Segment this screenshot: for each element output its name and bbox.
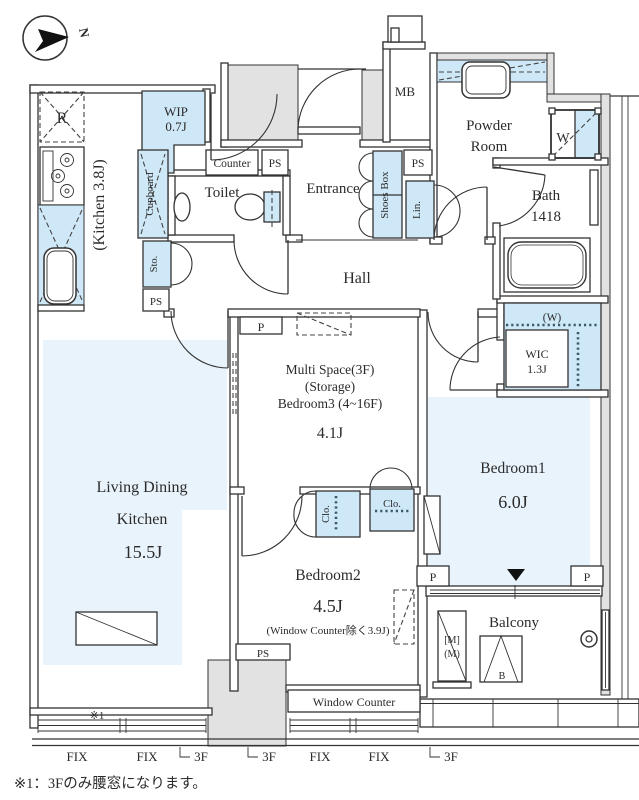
powder-room-label-1: Powder: [466, 118, 512, 134]
wall-segment: [497, 296, 608, 303]
bath-size: 1418: [531, 209, 561, 225]
cupboard-label: Cupboard: [144, 172, 156, 216]
wall-segment: [283, 176, 290, 235]
hall-label: Hall: [343, 270, 371, 287]
bedroom2-size: 4.5J: [313, 596, 343, 616]
footnote: ※1：3Fのみ腰窓になります。: [14, 774, 207, 792]
meter-label-1: [M]: [444, 635, 460, 646]
mb-label: MB: [395, 84, 416, 99]
powder-room-door: [434, 187, 487, 240]
multi-space-size: 4.1J: [317, 425, 343, 442]
ldk-table: [76, 612, 157, 645]
linen-label: Lin.: [411, 201, 423, 219]
toilet-label: Toilet: [205, 185, 241, 201]
wic-door: [450, 337, 500, 390]
multi-space-label-1: Multi Space(3F): [286, 362, 375, 377]
mb-pipe: [391, 28, 399, 42]
wall-opening-dashed: [231, 353, 237, 415]
counter-label: Counter: [213, 158, 250, 170]
vanity-counter: [437, 60, 547, 98]
drain: [581, 631, 597, 647]
bedroom2-door: [242, 496, 302, 556]
toilet-door: [234, 240, 288, 294]
pillar-label: P: [584, 570, 591, 584]
closet-label: Clo.: [321, 505, 332, 523]
ldk-size: 15.5J: [124, 542, 163, 562]
wall-segment: [433, 53, 554, 60]
window-counter-label: Window Counter: [313, 695, 396, 709]
entrance-label: Entrance: [306, 181, 360, 197]
window-type-label: 3F: [194, 749, 208, 764]
boiler-label: B: [499, 671, 506, 682]
wall-shelf: [424, 496, 440, 554]
wic-w-mark: (W): [543, 312, 562, 324]
wall-block: [362, 70, 383, 141]
ldk-label-2: Kitchen: [117, 511, 168, 528]
floor-plan-drawing: N (Kitchen 3.8J) WIP 0.7J R Counter PS C…: [0, 0, 639, 800]
bedroom1-door: [428, 312, 478, 362]
bedroom2-south-window: [290, 718, 418, 733]
bath-label: Bath: [532, 188, 561, 204]
compass-north-label: N: [76, 27, 93, 40]
ldk-south-window: [38, 718, 206, 733]
bath-counter: [590, 170, 598, 225]
window-type-label: 3F: [444, 749, 458, 764]
pillar-label: P: [258, 320, 265, 334]
balcony-railing: [420, 699, 639, 727]
wip-size: 0.7J: [165, 119, 186, 134]
ps-label: PS: [269, 158, 282, 170]
bedroom2-note: (Window Counter除く3.9J): [267, 623, 390, 637]
wic-label: WIC: [525, 347, 548, 361]
kitchen-label: (Kitchen 3.8J): [91, 159, 108, 251]
wall-segment: [360, 140, 434, 147]
balcony-side-window: [602, 610, 609, 690]
bathtub: [504, 238, 590, 292]
wall-segment: [221, 140, 302, 147]
ps-label: PS: [150, 296, 162, 308]
window-type-label: 3F: [262, 749, 276, 764]
toilet-sink: [174, 193, 190, 221]
vanity-sink: [462, 62, 510, 98]
floor-plan-page: N (Kitchen 3.8J) WIP 0.7J R Counter PS C…: [0, 0, 639, 800]
powder-room-label-2: Room: [471, 139, 508, 155]
wall-segment: [30, 85, 38, 728]
window-type-label: FIX: [67, 749, 89, 764]
wip-label: WIP: [164, 104, 188, 119]
wall-segment: [383, 42, 425, 49]
refrigerator-label: R: [57, 110, 68, 127]
entrance-door: [298, 69, 360, 134]
window-type-label: FIX: [369, 749, 391, 764]
meter-label-2: (M): [444, 649, 460, 660]
ps-label: PS: [257, 648, 269, 660]
window-type-label: FIX: [310, 749, 332, 764]
multi-space-label-3: Bedroom3 (4~16F): [278, 396, 382, 411]
window-type-label: FIX: [137, 749, 159, 764]
washer-label: W: [556, 131, 570, 146]
pillar-label: P: [430, 570, 437, 584]
note-mark: ※1: [90, 710, 105, 722]
wall-segment: [497, 300, 504, 340]
wall-segment: [230, 487, 244, 494]
shoes-box-label: Shoes Box: [379, 171, 391, 219]
storage-label: Sto.: [149, 256, 160, 273]
compass: N: [23, 16, 93, 60]
bedroom1-size: 6.0J: [498, 492, 528, 512]
ldk-label-1: Living Dining: [96, 479, 187, 496]
ps-label: PS: [412, 158, 425, 170]
entrance-porch: [228, 65, 298, 142]
wall-segment: [426, 586, 602, 596]
wall-segment: [493, 223, 500, 299]
pillar-block: [208, 660, 286, 746]
wall-segment: [383, 42, 390, 142]
wall-segment: [497, 390, 608, 397]
wall-segment: [168, 235, 234, 242]
wic-size: 1.3J: [527, 362, 547, 376]
wall-segment: [221, 63, 228, 147]
bedroom1-label: Bedroom1: [480, 460, 545, 477]
wall-segment: [30, 708, 212, 715]
bedroom2-label: Bedroom2: [295, 567, 360, 584]
balcony-label: Balcony: [489, 615, 539, 631]
stove: [40, 147, 84, 205]
multi-space-label-2: (Storage): [305, 379, 355, 394]
closet-label: Clo.: [383, 499, 401, 510]
kitchen-sink: [44, 248, 76, 304]
entrance-fixtures: [359, 150, 460, 238]
future-column-dashed: [394, 590, 414, 644]
